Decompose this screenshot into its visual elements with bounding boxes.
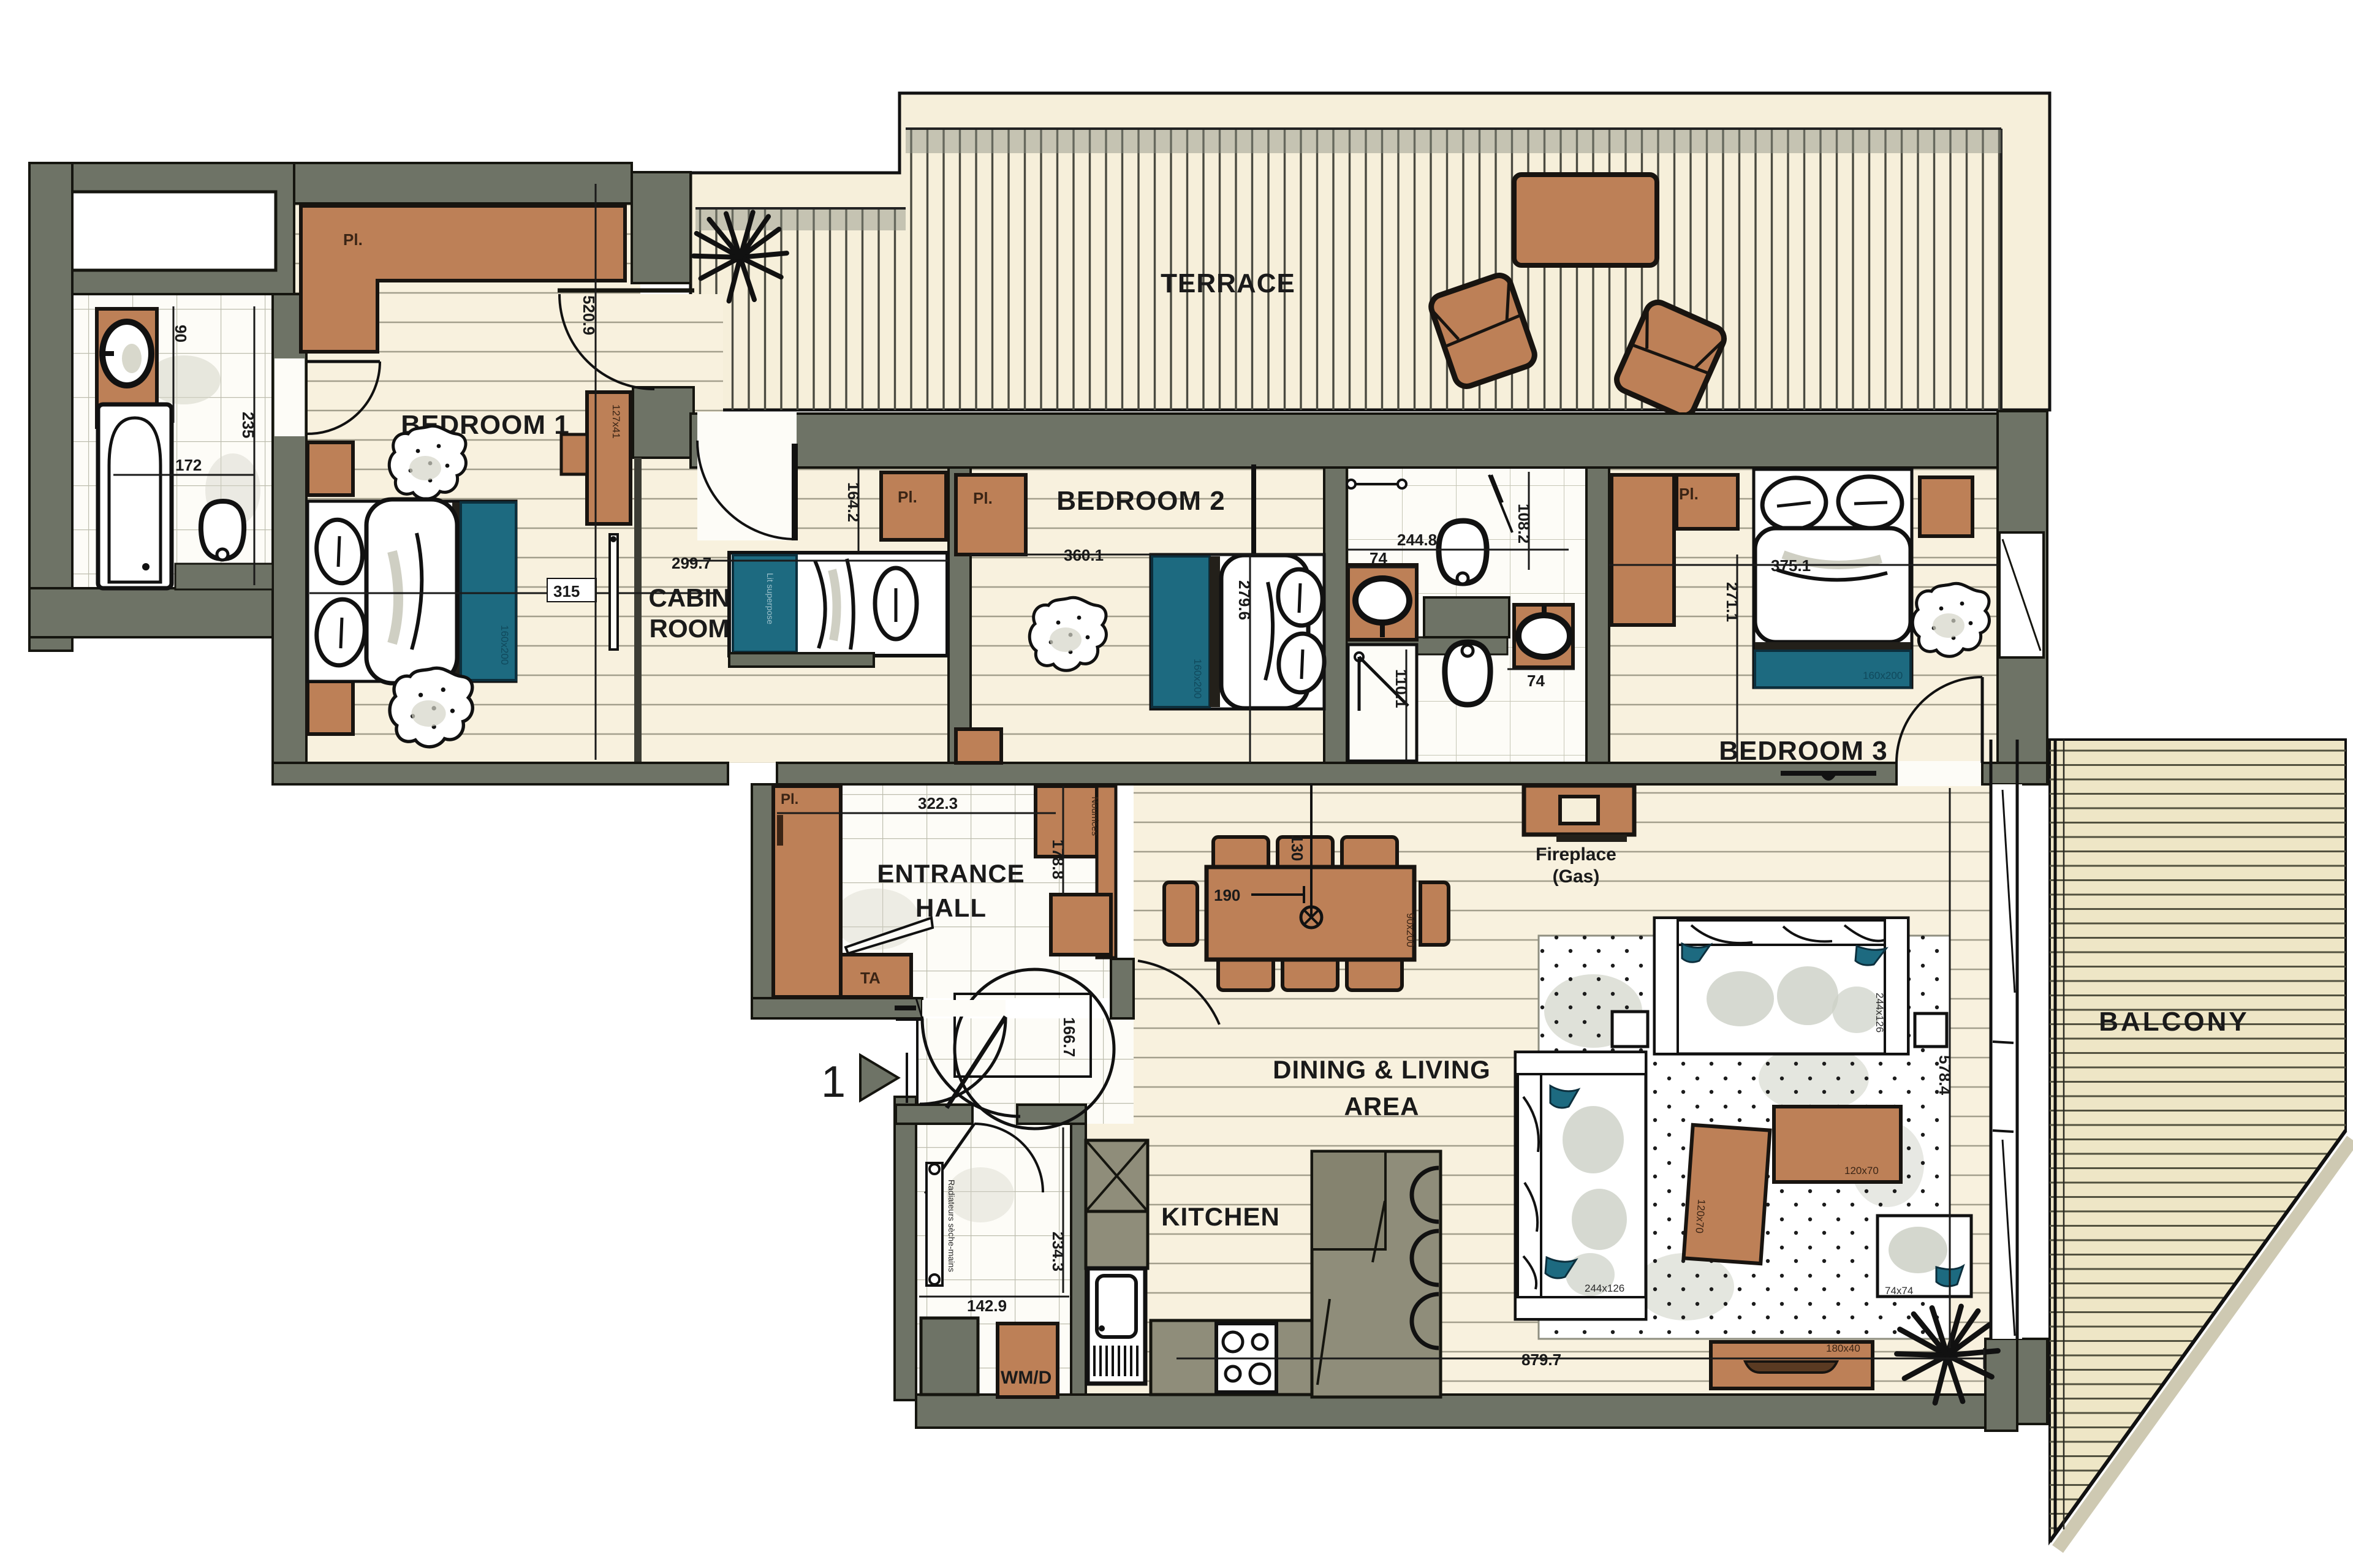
svg-text:ROOM: ROOM bbox=[650, 614, 730, 643]
svg-text:HALL: HALL bbox=[915, 893, 987, 922]
svg-text:166.7: 166.7 bbox=[1060, 1017, 1078, 1057]
svg-text:74: 74 bbox=[1370, 549, 1387, 567]
svg-text:271.1: 271.1 bbox=[1723, 582, 1741, 622]
svg-text:190: 190 bbox=[1214, 886, 1240, 904]
svg-text:CABIN: CABIN bbox=[649, 583, 730, 612]
svg-text:160x200: 160x200 bbox=[1192, 659, 1203, 699]
svg-text:74: 74 bbox=[1527, 672, 1545, 690]
svg-text:ENTRANCE: ENTRANCE bbox=[877, 859, 1025, 888]
svg-text:KITCHEN: KITCHEN bbox=[1161, 1202, 1280, 1231]
svg-text:520.9: 520.9 bbox=[580, 295, 598, 335]
svg-text:Lit superpose: Lit superpose bbox=[765, 573, 775, 624]
svg-text:Pl.: Pl. bbox=[1679, 485, 1699, 503]
svg-text:127x41: 127x41 bbox=[610, 404, 622, 439]
svg-text:BEDROOM 3: BEDROOM 3 bbox=[1719, 736, 1887, 766]
svg-text:879.7: 879.7 bbox=[1521, 1350, 1561, 1369]
svg-text:578.4: 578.4 bbox=[1936, 1055, 1954, 1096]
svg-text:BEDROOM 2: BEDROOM 2 bbox=[1056, 486, 1225, 516]
svg-text:279.6: 279.6 bbox=[1235, 580, 1254, 620]
svg-text:Pl.: Pl. bbox=[343, 230, 363, 249]
svg-text:142.9: 142.9 bbox=[967, 1297, 1007, 1315]
svg-text:172: 172 bbox=[175, 456, 202, 474]
svg-text:180x40: 180x40 bbox=[1826, 1343, 1860, 1354]
svg-text:160x200: 160x200 bbox=[499, 625, 510, 665]
svg-text:Pl.: Pl. bbox=[898, 488, 917, 506]
svg-text:Radiateurs sèche-mains: Radiateurs sèche-mains bbox=[947, 1180, 957, 1272]
svg-text:1: 1 bbox=[821, 1058, 846, 1107]
svg-text:244x126: 244x126 bbox=[1874, 993, 1885, 1032]
svg-text:178.8: 178.8 bbox=[1049, 839, 1067, 879]
svg-text:244x126: 244x126 bbox=[1585, 1282, 1624, 1294]
svg-text:234.3: 234.3 bbox=[1049, 1232, 1067, 1271]
svg-text:TA: TA bbox=[860, 969, 881, 987]
svg-text:235: 235 bbox=[239, 412, 257, 438]
svg-text:WM/D: WM/D bbox=[1001, 1368, 1051, 1388]
svg-text:108.2: 108.2 bbox=[1515, 504, 1533, 543]
svg-text:120x70: 120x70 bbox=[1693, 1199, 1707, 1233]
svg-text:TERRACE: TERRACE bbox=[1161, 268, 1295, 298]
svg-text:BALCONY: BALCONY bbox=[2099, 1007, 2249, 1037]
svg-text:Fireplace: Fireplace bbox=[1536, 844, 1616, 865]
svg-text:Nourrices: Nourrices bbox=[1089, 797, 1100, 836]
svg-text:375.1: 375.1 bbox=[1771, 556, 1811, 575]
svg-text:360.1: 360.1 bbox=[1064, 546, 1104, 564]
svg-text:110.1: 110.1 bbox=[1392, 669, 1411, 708]
svg-text:90: 90 bbox=[172, 325, 190, 343]
svg-text:164.2: 164.2 bbox=[844, 482, 863, 522]
svg-text:90x200: 90x200 bbox=[1404, 913, 1416, 947]
svg-text:DINING & LIVING: DINING & LIVING bbox=[1273, 1055, 1491, 1084]
svg-text:160x200: 160x200 bbox=[1863, 670, 1903, 681]
svg-text:120x70: 120x70 bbox=[1844, 1165, 1879, 1176]
svg-text:74x74: 74x74 bbox=[1885, 1285, 1913, 1297]
svg-text:315: 315 bbox=[553, 582, 580, 600]
svg-text:AREA: AREA bbox=[1344, 1092, 1419, 1121]
svg-text:322.3: 322.3 bbox=[918, 794, 958, 812]
svg-text:244.8: 244.8 bbox=[1397, 531, 1437, 549]
svg-text:299.7: 299.7 bbox=[672, 554, 711, 572]
svg-text:(Gas): (Gas) bbox=[1553, 866, 1600, 887]
svg-text:130: 130 bbox=[1288, 835, 1306, 861]
svg-text:Pl.: Pl. bbox=[781, 791, 798, 808]
svg-text:Pl.: Pl. bbox=[973, 489, 993, 507]
